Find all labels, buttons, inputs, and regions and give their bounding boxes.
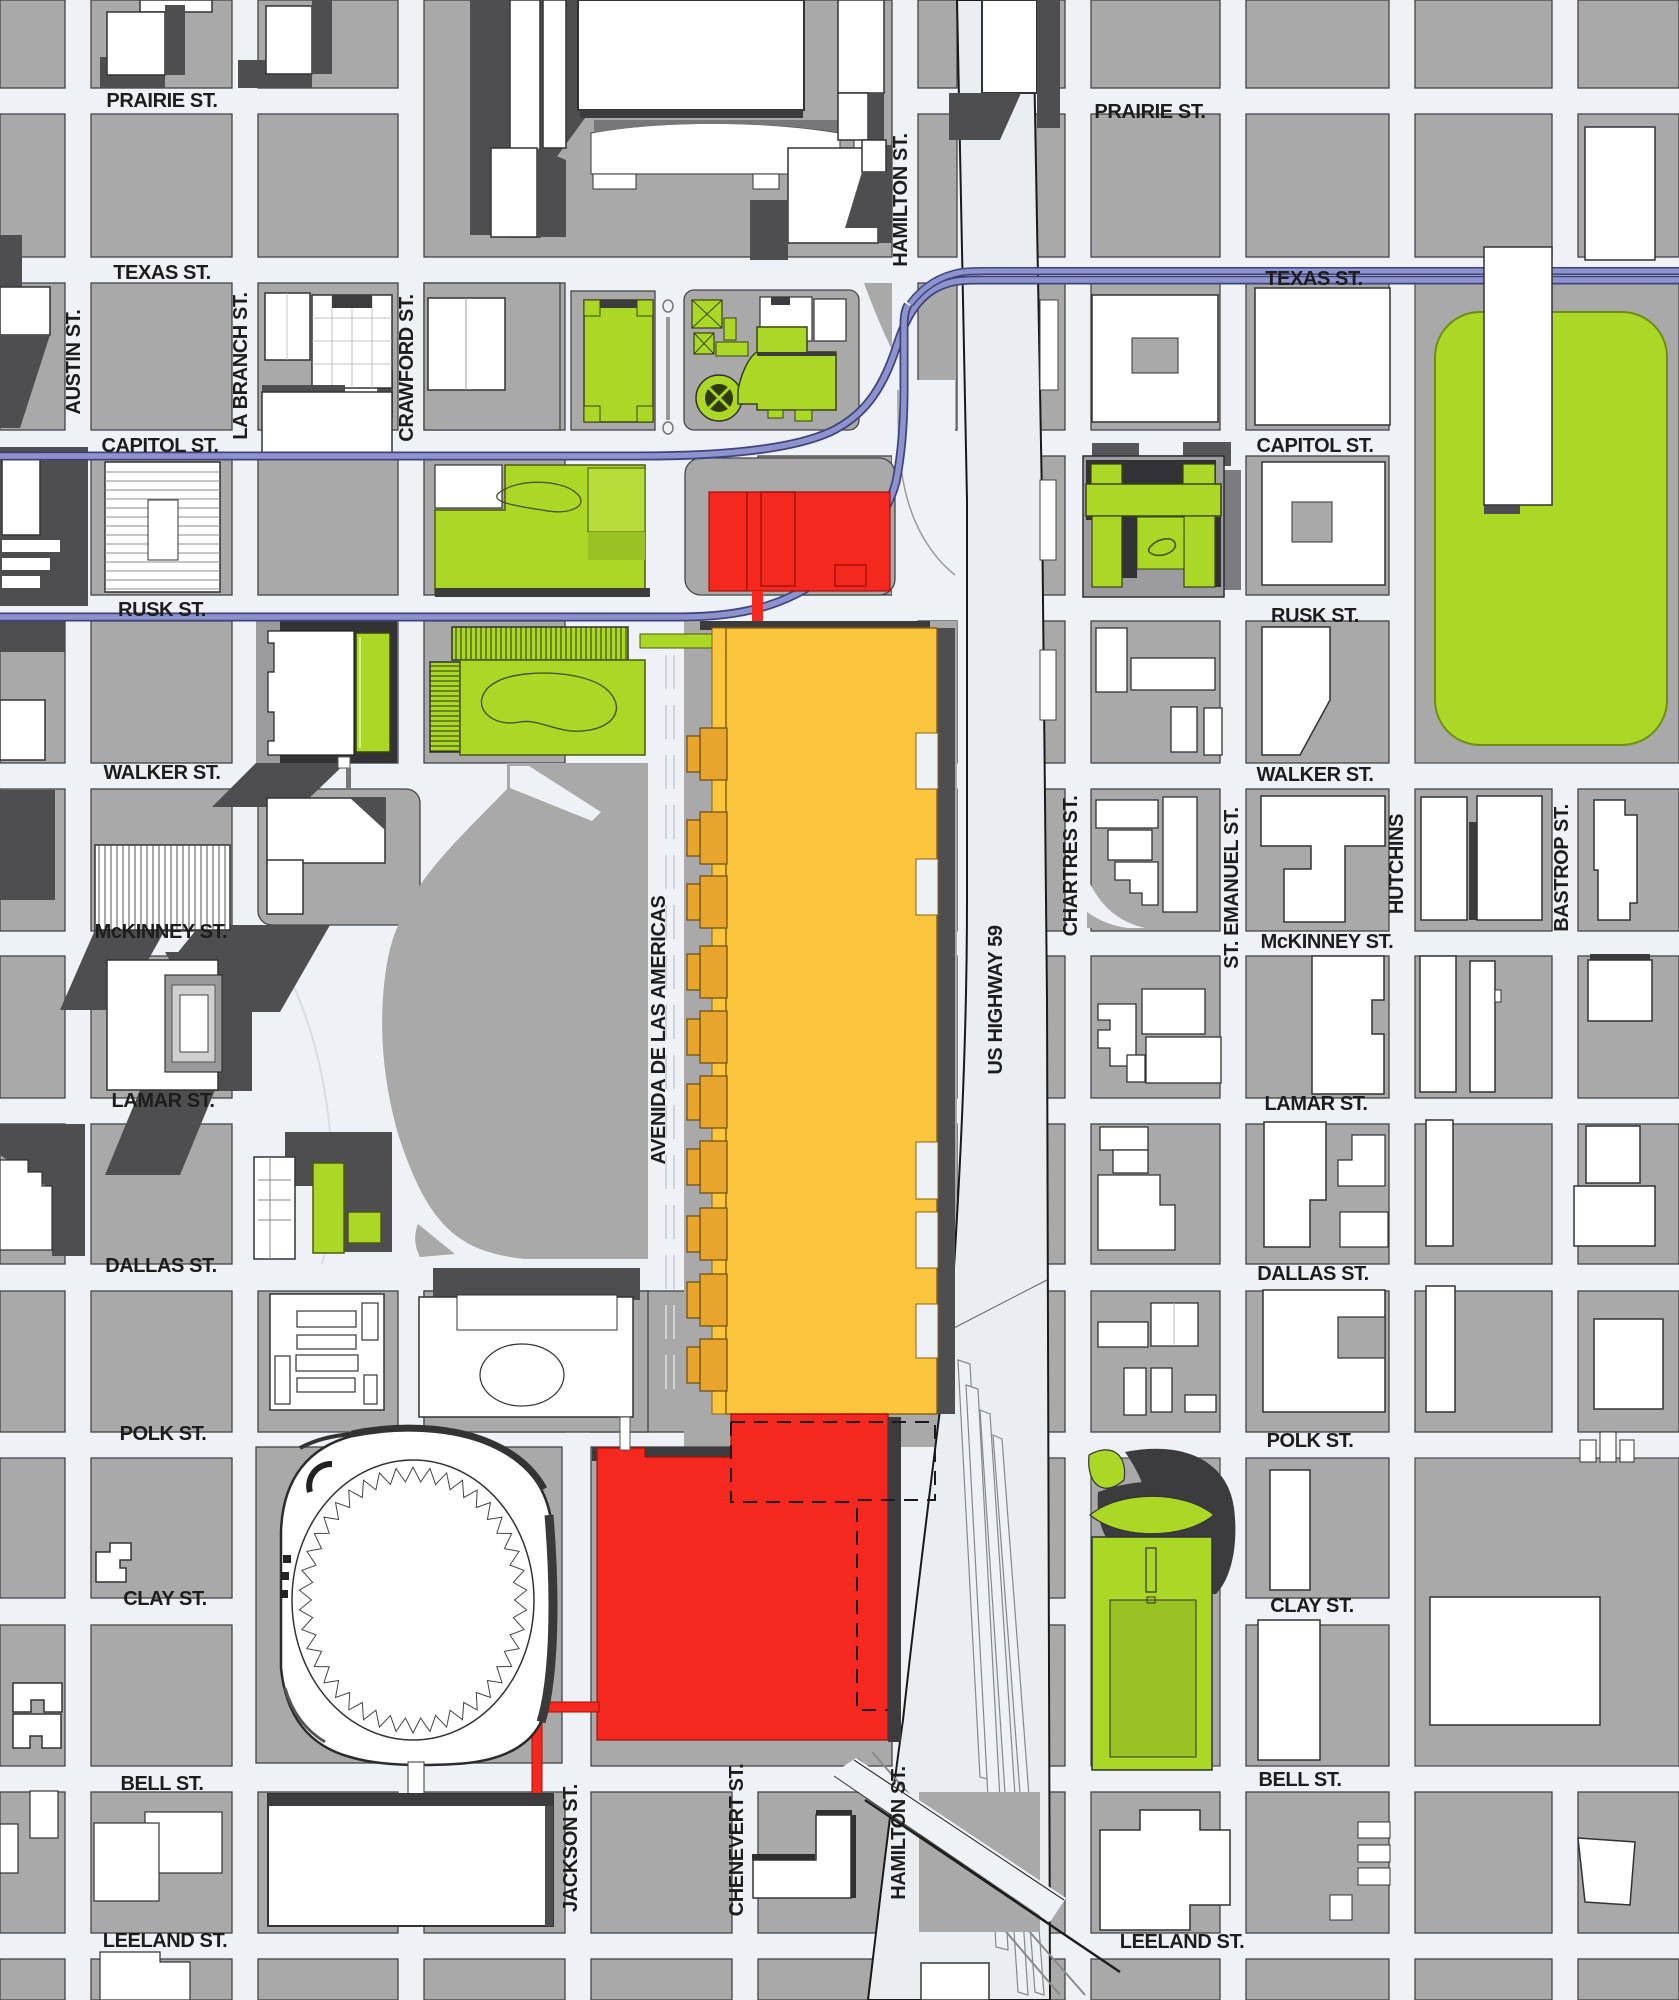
svg-text:US HIGHWAY 59: US HIGHWAY 59 — [985, 925, 1007, 1075]
svg-text:TEXAS ST.: TEXAS ST. — [1265, 268, 1363, 290]
svg-text:CHARTRES ST.: CHARTRES ST. — [1060, 796, 1082, 937]
svg-text:McKINNEY ST.: McKINNEY ST. — [95, 921, 228, 943]
svg-text:BELL ST.: BELL ST. — [120, 1773, 203, 1795]
svg-text:CLAY ST.: CLAY ST. — [123, 1588, 207, 1610]
svg-text:LAMAR ST.: LAMAR ST. — [1264, 1093, 1367, 1115]
svg-text:POLK ST.: POLK ST. — [1267, 1430, 1354, 1452]
svg-text:CAPITOL ST.: CAPITOL ST. — [101, 435, 218, 457]
svg-text:POLK ST.: POLK ST. — [120, 1423, 207, 1445]
svg-text:WALKER ST.: WALKER ST. — [103, 762, 220, 784]
svg-text:RUSK ST.: RUSK ST. — [1271, 605, 1359, 627]
svg-text:LEELAND ST.: LEELAND ST. — [1120, 1931, 1245, 1953]
svg-text:HAMILTON ST.: HAMILTON ST. — [890, 133, 912, 266]
svg-text:HAMILTON ST.: HAMILTON ST. — [888, 1766, 910, 1899]
svg-text:CAPITOL ST.: CAPITOL ST. — [1256, 435, 1373, 457]
svg-text:CRAWFORD ST.: CRAWFORD ST. — [396, 294, 418, 441]
svg-text:PRAIRIE ST.: PRAIRIE ST. — [106, 90, 217, 112]
svg-text:McKINNEY ST.: McKINNEY ST. — [1261, 931, 1394, 953]
svg-text:AUSTIN ST.: AUSTIN ST. — [63, 310, 85, 415]
svg-text:BASTROP ST.: BASTROP ST. — [1551, 804, 1573, 931]
svg-text:LAMAR ST.: LAMAR ST. — [111, 1090, 214, 1112]
svg-text:AVENIDA DE LAS AMERICAS: AVENIDA DE LAS AMERICAS — [648, 895, 670, 1164]
svg-text:WALKER ST.: WALKER ST. — [1256, 764, 1373, 786]
svg-text:RUSK ST.: RUSK ST. — [118, 599, 206, 621]
svg-text:ST. EMANUEL ST.: ST. EMANUEL ST. — [1221, 807, 1243, 968]
svg-text:LEELAND ST.: LEELAND ST. — [103, 1930, 228, 1952]
svg-text:JACKSON ST.: JACKSON ST. — [560, 1784, 582, 1912]
svg-text:CHENEVERT ST.: CHENEVERT ST. — [726, 1764, 748, 1917]
svg-text:CLAY ST.: CLAY ST. — [1270, 1595, 1354, 1617]
svg-text:TEXAS ST.: TEXAS ST. — [113, 262, 211, 284]
svg-text:DALLAS ST.: DALLAS ST. — [105, 1255, 217, 1277]
svg-text:PRAIRIE ST.: PRAIRIE ST. — [1094, 101, 1205, 123]
svg-text:DALLAS ST.: DALLAS ST. — [1257, 1263, 1369, 1285]
svg-text:LA BRANCH ST.: LA BRANCH ST. — [230, 292, 252, 439]
svg-text:HUTCHINS: HUTCHINS — [1386, 814, 1408, 914]
svg-text:BELL ST.: BELL ST. — [1258, 1769, 1341, 1791]
